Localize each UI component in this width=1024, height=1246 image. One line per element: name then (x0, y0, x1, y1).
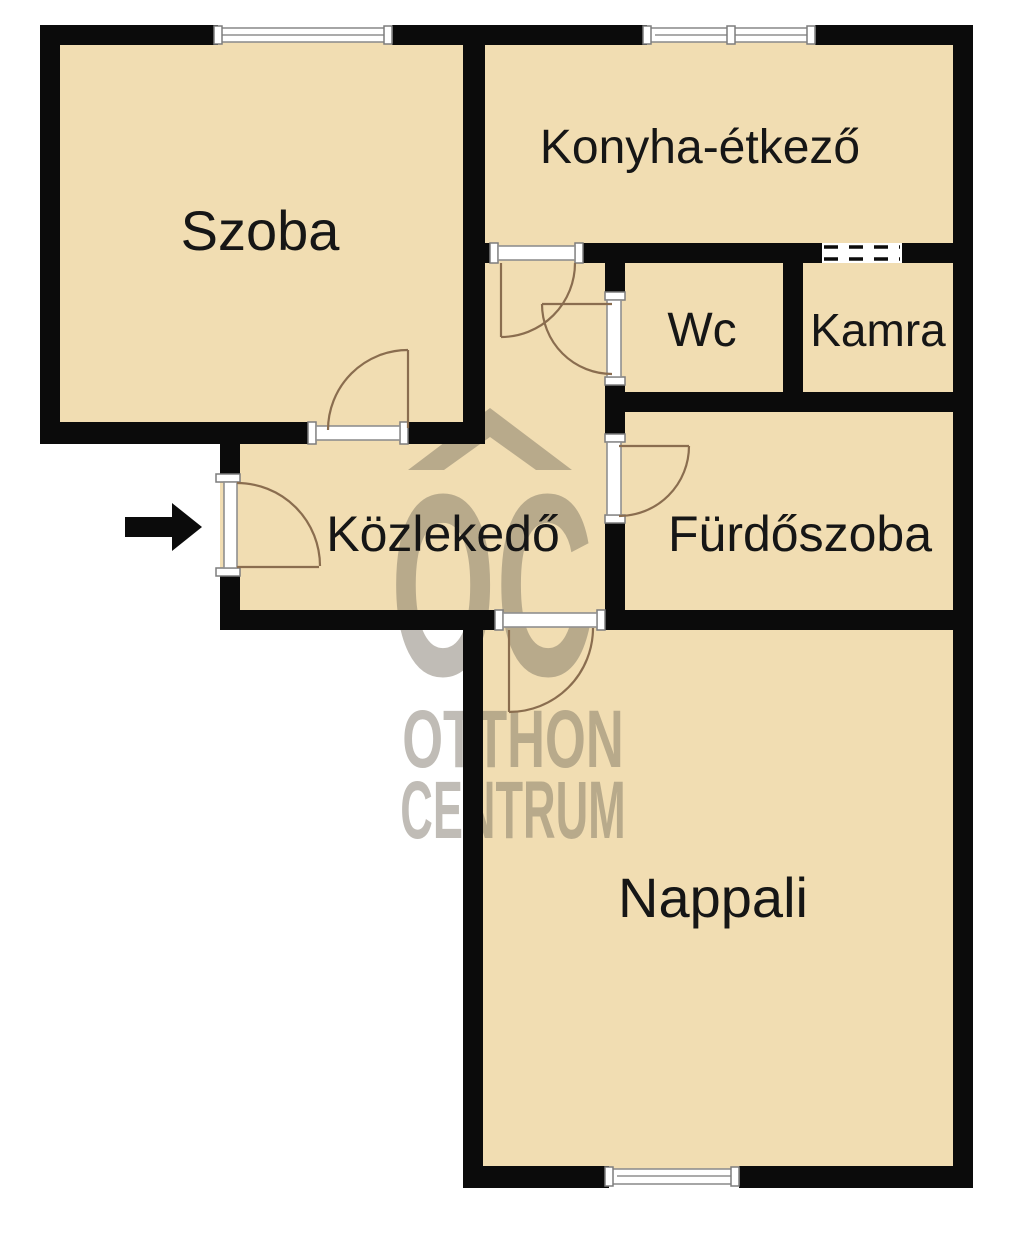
room-label-kozlekedo: Közlekedő (326, 506, 560, 562)
watermark-logo: OC (391, 439, 594, 730)
wall-right (953, 25, 973, 1188)
wall-wc-left-c (605, 523, 625, 610)
outside-left (0, 444, 220, 644)
wall-top-c (815, 25, 973, 45)
wall-left (40, 45, 60, 444)
wall-nappali-bottom-a (463, 1166, 609, 1188)
window-nappali (605, 1167, 739, 1186)
wall-corridor-bottom (220, 610, 495, 630)
wall-top-a (40, 25, 218, 45)
wall-szoba-bottom-a (40, 422, 308, 444)
wall-top-b (392, 25, 647, 45)
wall-konyha-bottom-c (902, 243, 953, 263)
room-label-konyha-etkezo: Konyha-étkező (540, 121, 860, 174)
room-label-szoba: Szoba (181, 199, 341, 262)
window-szoba (214, 26, 392, 44)
floorplan-svg: OC OTTHON CENTRUM (0, 0, 1024, 1246)
floorplan: OC OTTHON CENTRUM (0, 0, 1024, 1246)
kamra-opening (822, 243, 902, 263)
wall-furdo-bottom (605, 610, 953, 630)
watermark-line2: CENTRUM (400, 765, 625, 857)
window-konyha (643, 26, 815, 44)
wall-nappali-bottom-b (739, 1166, 973, 1188)
room-label-kamra: Kamra (810, 304, 946, 356)
wall-wc-kamra (783, 263, 803, 392)
wall-furdo-top (605, 392, 953, 412)
wall-nappali-left (463, 630, 483, 1188)
wall-konyha-bottom-b (583, 243, 822, 263)
wall-szoba-right (463, 45, 485, 422)
room-label-nappali: Nappali (618, 866, 808, 929)
room-label-furdoszoba: Fürdőszoba (668, 506, 932, 562)
wall-wc-left-a (605, 263, 625, 292)
room-label-wc: Wc (667, 304, 736, 357)
wall-szoba-bottom-b (408, 422, 485, 444)
